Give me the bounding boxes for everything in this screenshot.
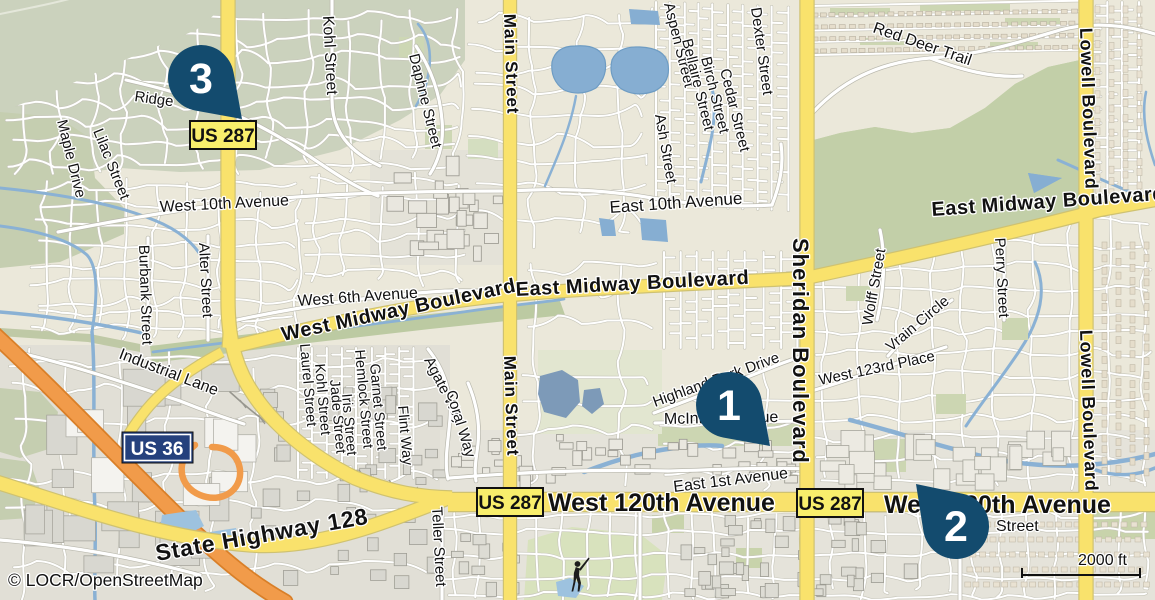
svg-text:Burbank Street: Burbank Street [135, 245, 156, 346]
svg-text:West 120th Avenue: West 120th Avenue [548, 489, 775, 517]
svg-text:2000 ft: 2000 ft [1078, 552, 1127, 569]
svg-text:Sheridan Boulevard: Sheridan Boulevard [788, 238, 813, 464]
svg-text:US 287: US 287 [798, 494, 861, 515]
svg-text:US 287: US 287 [191, 126, 254, 147]
svg-text:Main Street: Main Street [500, 355, 522, 456]
svg-text:3: 3 [189, 55, 213, 103]
svg-text:1: 1 [717, 382, 741, 430]
svg-text:Main Street: Main Street [500, 13, 522, 114]
svg-text:2: 2 [944, 503, 968, 551]
svg-text:US 36: US 36 [131, 439, 184, 460]
svg-text:Street: Street [996, 518, 1039, 535]
svg-text:© LOCR/OpenStreetMap: © LOCR/OpenStreetMap [8, 570, 203, 590]
svg-text:US 287: US 287 [478, 493, 541, 514]
